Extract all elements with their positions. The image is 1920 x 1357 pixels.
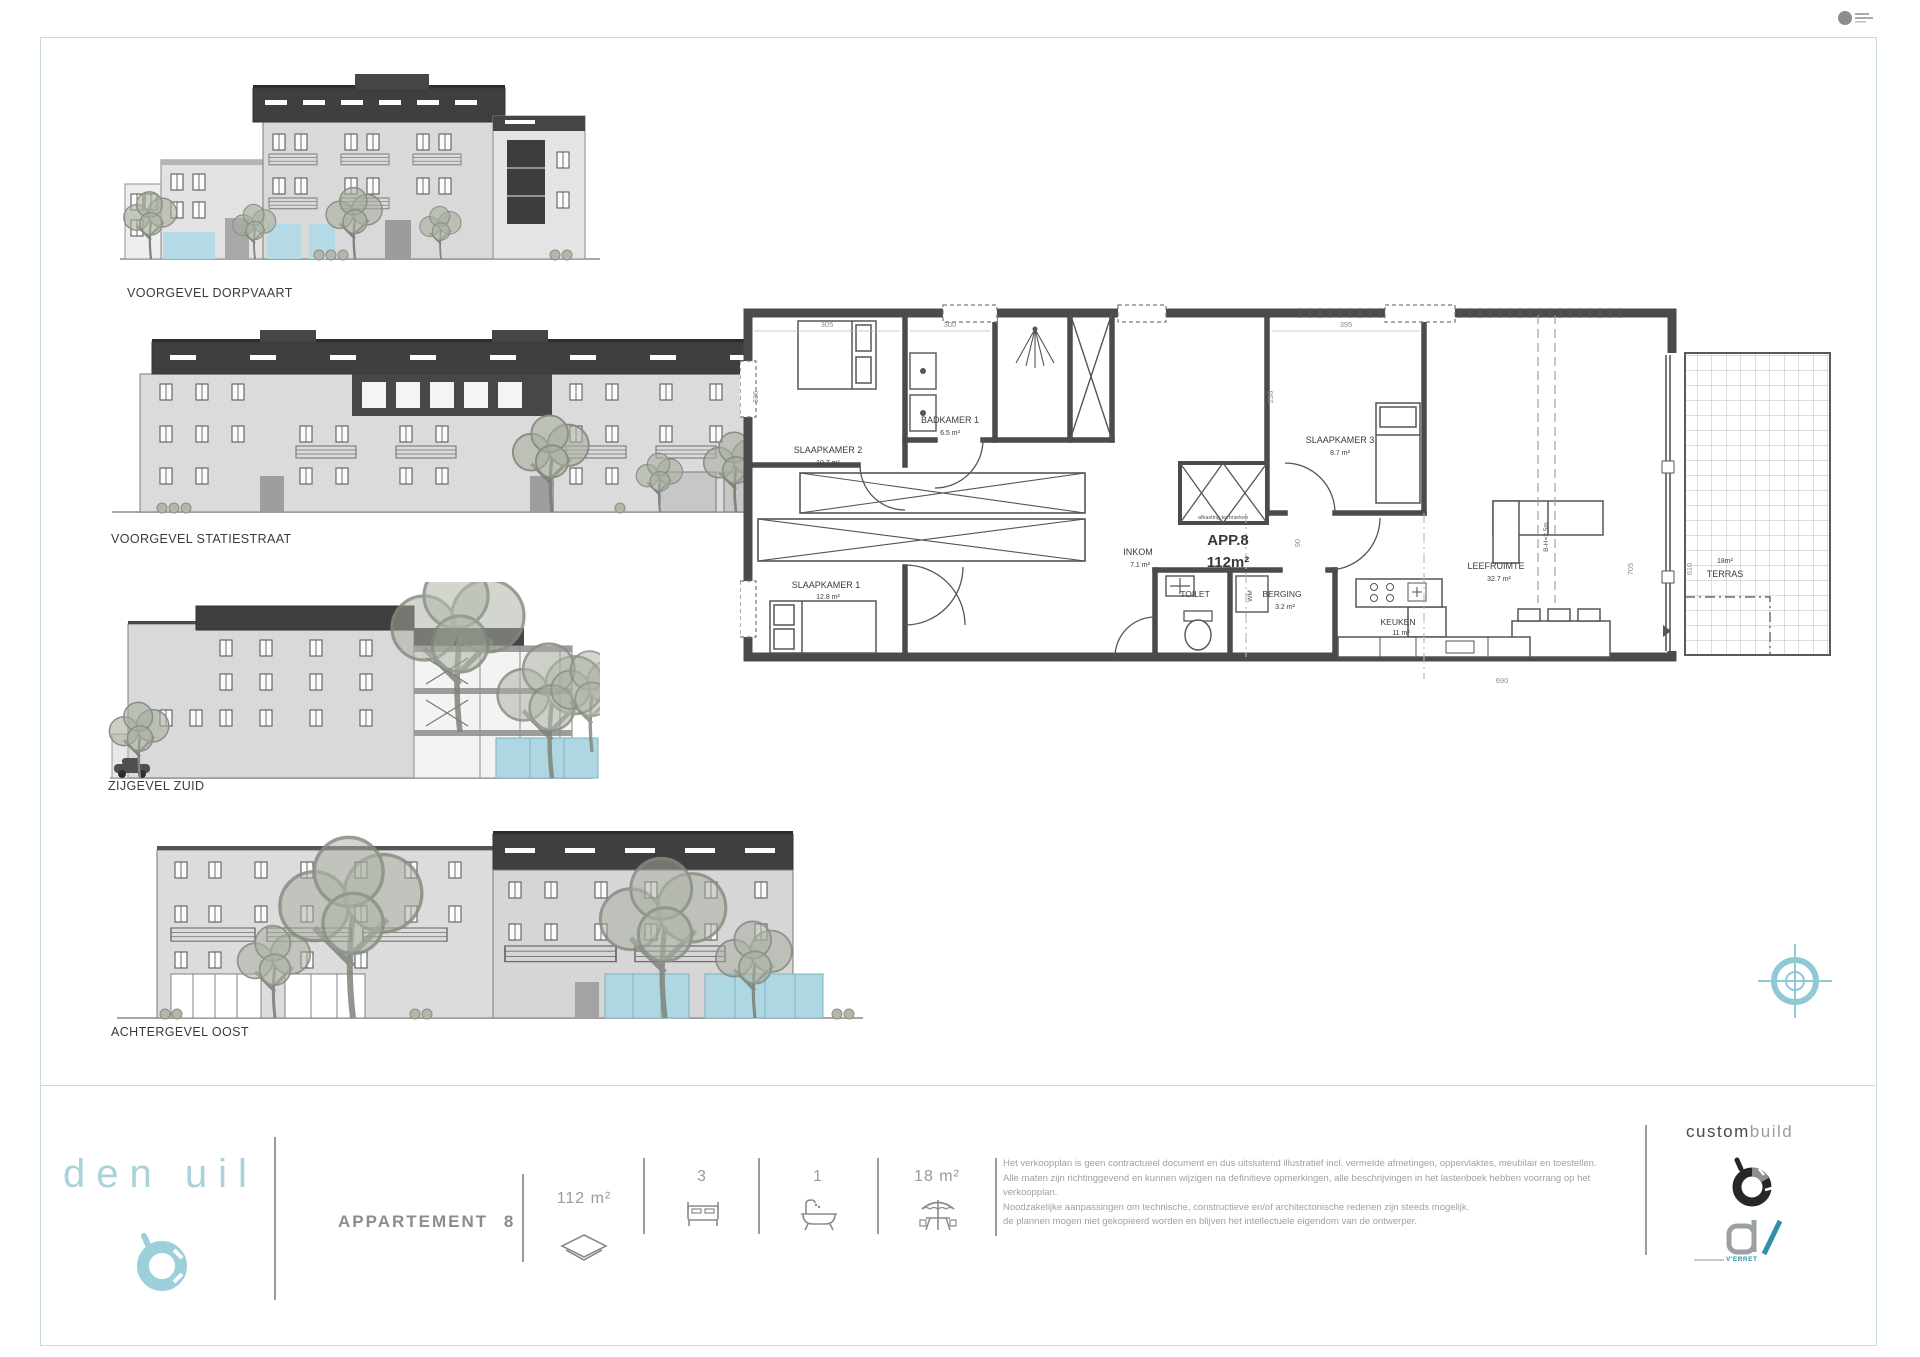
elevation-zuid-drawing (100, 582, 600, 807)
room-label-berging: BERGING (1262, 589, 1301, 599)
disclaimer-line: Het verkoopplan is geen contractueel doc… (1003, 1157, 1638, 1172)
tech-annotation: afkasting technieken (1198, 515, 1248, 521)
bathtub-icon (798, 1196, 840, 1234)
room-area-keuken: 11 m² (1392, 630, 1410, 637)
floorplan-app8: SLAAPKAMER 2 10.7 m² BADKAMER 1 6.5 m² S… (740, 295, 1850, 690)
elevation-label-zuid: ZIJGEVEL ZUID (108, 779, 204, 793)
room-label-slaapkamer2: SLAAPKAMER 2 (794, 445, 863, 455)
apartment-area-label: 112m² (1207, 554, 1250, 571)
room-label-slaapkamer1: SLAAPKAMER 1 (792, 580, 861, 590)
room-label-inkom: INKOM (1123, 547, 1153, 557)
room-label-terras: TERRAS (1707, 569, 1744, 579)
partner-dv-logo (1726, 1218, 1786, 1258)
stat-floor-area-value: 112 m² (557, 1190, 612, 1208)
disclaimer-text: Het verkoopplan is geen contractueel doc… (1003, 1157, 1638, 1230)
height-annotation: B-H=2.5m (1543, 522, 1550, 551)
room-label-leefruimte: LEEFRUIMTE (1467, 561, 1524, 571)
dim-terras-height: 610 (1685, 563, 1694, 576)
compass-icon (1758, 944, 1832, 1018)
watermark-logo (1836, 8, 1880, 30)
bed-icon (684, 1198, 722, 1232)
apartment-title: APPARTEMENT 8 (338, 1212, 515, 1232)
room-label-keuken: KEUKEN (1381, 617, 1416, 627)
partner-subtext-line (1694, 1259, 1724, 1261)
partner-subbrand: V'ERRET (1726, 1256, 1757, 1263)
room-area-slaapkamer1: 12.8 m² (816, 594, 840, 601)
footer-divider-3 (643, 1158, 645, 1234)
footer-divider-4 (758, 1158, 760, 1234)
footer-divider-2 (522, 1174, 524, 1262)
brand-logo-icon (130, 1228, 194, 1300)
dim-badkamer-width: 300 (944, 320, 957, 329)
room-area-inkom: 7.1 m² (1130, 562, 1151, 569)
dim-bottom-width: 690 (1496, 676, 1509, 685)
partner-word-custom: custom (1686, 1122, 1750, 1141)
room-area-terras: 18m² (1717, 558, 1734, 565)
footer-divider-1 (274, 1137, 276, 1300)
terrace-umbrella-icon (918, 1196, 958, 1236)
room-label-slaapkamer3: SLAAPKAMER 3 (1306, 435, 1375, 445)
stat-bathrooms-value: 1 (813, 1168, 823, 1186)
room-area-berging: 3.2 m² (1275, 604, 1296, 611)
stat-terrace-area-value: 18 m² (914, 1168, 960, 1186)
elevation-label-dorpvaart: VOORGEVEL DORPVAART (127, 286, 293, 300)
partner-word-build: build (1750, 1122, 1793, 1141)
room-label-badkamer1: BADKAMER 1 (921, 415, 979, 425)
room-area-badkamer1: 6.5 m² (940, 430, 961, 437)
elevation-label-oost: ACHTERGEVEL OOST (111, 1025, 249, 1039)
dim-slaapkamer3-width: 395 (1340, 320, 1353, 329)
footer-divider-7 (1645, 1125, 1647, 1255)
room-area-leefruimte: 32.7 m² (1487, 576, 1511, 583)
wm-annotation: WM (1247, 590, 1254, 602)
partner-ring-logo (1728, 1156, 1776, 1212)
disclaimer-line: de plannen mogen niet gekopieerd worden … (1003, 1215, 1638, 1230)
stat-bedrooms-value: 3 (697, 1168, 707, 1186)
partner-logo-text: custombuild (1686, 1122, 1793, 1142)
footer-divider-line (40, 1085, 1875, 1086)
disclaimer-line: Noodzakelijke aanpassingen om technische… (1003, 1201, 1638, 1216)
footer-divider-5 (877, 1158, 879, 1234)
elevation-label-statiestraat: VOORGEVEL STATIESTRAAT (111, 532, 292, 546)
room-label-toilet: TOILET (1180, 589, 1210, 599)
room-area-slaapkamer3: 8.7 m² (1330, 450, 1351, 457)
dim-slaapkamer2-height: 336 (751, 391, 760, 404)
dim-door: 90 (1293, 539, 1302, 547)
dim-right-height: 705 (1626, 563, 1635, 576)
elevation-oost-drawing (105, 812, 875, 1047)
dim-slaapkamer3-height: 236 (1266, 391, 1275, 404)
brand-logo-text: den uil (63, 1152, 258, 1197)
elevation-dorpvaart-drawing (105, 62, 615, 292)
dim-slaapkamer2-width: 305 (821, 320, 834, 329)
footer-divider-6 (995, 1158, 997, 1236)
disclaimer-line: Alle maten zijn richtinggevend en kunnen… (1003, 1172, 1638, 1201)
apartment-id-label: APP.8 (1207, 532, 1248, 549)
room-area-slaapkamer2: 10.7 m² (816, 460, 840, 467)
floor-area-icon (560, 1233, 608, 1265)
